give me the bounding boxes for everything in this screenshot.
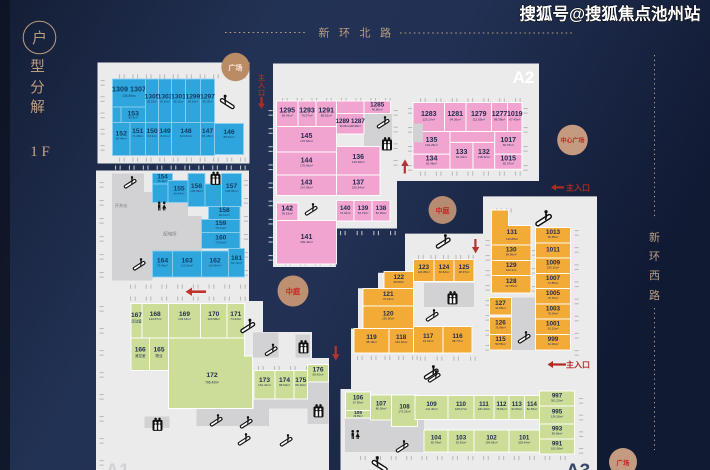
svg-text:75.96m²: 75.96m² (157, 264, 168, 268)
svg-text:149.38m²: 149.38m² (352, 160, 365, 164)
svg-text:94.26m²: 94.26m² (450, 118, 461, 122)
svg-text:81.46m²: 81.46m² (426, 162, 437, 166)
svg-text:117.85m²: 117.85m² (505, 284, 517, 288)
svg-text:93.92m²: 93.92m² (456, 441, 467, 445)
svg-text:A3: A3 (566, 461, 590, 470)
svg-text:分: 分 (30, 80, 45, 97)
svg-text:广场: 广场 (229, 63, 243, 72)
svg-text:64.73m²: 64.73m² (358, 211, 369, 215)
svg-text:中庭: 中庭 (436, 206, 451, 215)
svg-text:301.23m²: 301.23m² (551, 399, 563, 403)
svg-text:中庭: 中庭 (286, 287, 301, 296)
svg-text:74.85m²: 74.85m² (548, 281, 559, 285)
svg-text:108.44m²: 108.44m² (518, 441, 530, 445)
svg-text:170.66m²: 170.66m² (300, 139, 313, 143)
svg-text:131: 131 (507, 229, 518, 236)
svg-text:48.97m²: 48.97m² (459, 270, 470, 274)
svg-text:85.15m²: 85.15m² (188, 100, 198, 104)
svg-text:66.44m²: 66.44m² (173, 192, 184, 196)
svg-text:79.44m²: 79.44m² (215, 226, 226, 230)
svg-text:123.17m²: 123.17m² (422, 118, 435, 122)
svg-text:88.94m²: 88.94m² (223, 135, 234, 139)
svg-text:1289 1287: 1289 1287 (336, 118, 366, 125)
svg-text:85.43m²: 85.43m² (282, 114, 293, 118)
svg-text:71.08m²: 71.08m² (132, 134, 143, 138)
svg-text:物业: 物业 (155, 353, 163, 358)
svg-text:新环北路: 新环北路 (319, 26, 401, 40)
svg-text:138.32m²: 138.32m² (478, 155, 491, 159)
svg-text:796.43m²: 796.43m² (205, 381, 218, 385)
svg-text:143.87m²: 143.87m² (149, 317, 162, 321)
svg-text:121.86m²: 121.86m² (418, 270, 430, 274)
svg-text:82.25m²: 82.25m² (147, 100, 157, 104)
svg-text:86.36m²: 86.36m² (376, 407, 387, 411)
svg-text:154.09m²: 154.09m² (485, 441, 497, 445)
svg-text:路: 路 (649, 289, 660, 302)
svg-text:搜狐号@搜狐焦点池州站: 搜狐号@搜狐焦点池州站 (519, 4, 701, 24)
svg-text:西: 西 (649, 270, 660, 282)
svg-text:173.23m²: 173.23m² (398, 410, 410, 414)
svg-text:开关站: 开关站 (115, 202, 128, 209)
svg-text:63.71m²: 63.71m² (231, 261, 242, 265)
svg-text:59.55m²: 59.55m² (495, 342, 506, 346)
svg-text:104.86m²: 104.86m² (209, 264, 222, 268)
svg-text:86.45m²: 86.45m² (202, 134, 213, 138)
svg-text:76.51m²: 76.51m² (548, 296, 559, 300)
svg-text:62.59m²: 62.59m² (527, 407, 538, 411)
svg-text:88.52m²: 88.52m² (321, 114, 332, 118)
svg-text:67.43m²: 67.43m² (509, 118, 520, 122)
svg-text:75.88m²: 75.88m² (495, 326, 506, 330)
svg-text:84.3m²: 84.3m² (147, 134, 156, 138)
svg-text:399.43m²: 399.43m² (300, 240, 313, 244)
svg-text:57.36m²: 57.36m² (353, 401, 364, 405)
svg-text:61.51m²: 61.51m² (548, 327, 559, 331)
svg-text:A1: A1 (105, 461, 130, 470)
svg-text:166: 166 (135, 347, 146, 354)
svg-text:172: 172 (206, 372, 218, 379)
svg-text:167.99m²: 167.99m² (300, 186, 313, 190)
svg-text:35.46m²: 35.46m² (157, 179, 167, 183)
svg-text:84.44m²: 84.44m² (116, 137, 127, 141)
svg-text:62.59m²: 62.59m² (511, 407, 522, 411)
svg-text:39.19m²: 39.19m² (282, 212, 293, 216)
svg-text:134.32m²: 134.32m² (395, 340, 407, 344)
svg-text:1299: 1299 (186, 94, 201, 101)
svg-text:58.42m²: 58.42m² (312, 373, 323, 377)
svg-text:100.3m²: 100.3m² (506, 268, 517, 272)
svg-text:95.19m²: 95.19m² (295, 383, 306, 387)
svg-text:133.16m²: 133.16m² (178, 317, 191, 321)
svg-text:65.78m²: 65.78m² (431, 441, 442, 445)
svg-text:中心广场: 中心广场 (560, 137, 584, 145)
svg-text:主入口: 主入口 (566, 360, 590, 370)
svg-text:104.84m²: 104.84m² (180, 134, 193, 138)
svg-text:105.38m²: 105.38m² (551, 447, 563, 451)
svg-text:85.15m²: 85.15m² (203, 100, 213, 104)
svg-text:136.28m²: 136.28m² (551, 415, 563, 419)
svg-text:1 F: 1 F (30, 144, 50, 160)
svg-text:1297: 1297 (200, 94, 215, 101)
svg-text:环: 环 (649, 251, 660, 263)
svg-text:广场: 广场 (617, 458, 631, 467)
svg-text:40.80m²: 40.80m² (372, 108, 383, 112)
svg-text:135.59m²: 135.59m² (122, 94, 135, 98)
svg-text:1301: 1301 (171, 94, 186, 101)
svg-text:81.25m²: 81.25m² (376, 211, 387, 215)
svg-text:112.05m²: 112.05m² (473, 118, 485, 122)
svg-text:68.04m²: 68.04m² (279, 383, 290, 387)
svg-text:84.9m²: 84.9m² (160, 134, 169, 138)
svg-text:98.8m²: 98.8m² (129, 116, 138, 120)
svg-text:156.84m²: 156.84m² (352, 186, 365, 190)
svg-text:101.26m²: 101.26m² (425, 143, 438, 147)
svg-text:91.10m²: 91.10m² (423, 339, 434, 343)
svg-text:63.62m²: 63.62m² (439, 270, 450, 274)
svg-text:消控室: 消控室 (135, 353, 146, 358)
svg-text:170.66m²: 170.66m² (300, 164, 313, 168)
svg-text:110.06m²: 110.06m² (181, 264, 193, 268)
svg-text:31.85m²: 31.85m² (495, 306, 506, 310)
svg-text:123.98m²: 123.98m² (207, 317, 220, 321)
svg-text:解: 解 (30, 99, 45, 116)
svg-text:161.31m²: 161.31m² (258, 383, 271, 387)
svg-text:79.43m²: 79.43m² (383, 297, 394, 301)
svg-text:72.42m²: 72.42m² (340, 211, 351, 215)
svg-text:1011: 1011 (546, 247, 560, 254)
svg-text:口: 口 (258, 89, 265, 97)
svg-text:146.88m²: 146.88m² (506, 237, 518, 241)
svg-text:型: 型 (30, 59, 45, 76)
svg-text:活动室: 活动室 (131, 319, 142, 324)
svg-text:98.58m²: 98.58m² (393, 280, 404, 284)
svg-text:65.37m²: 65.37m² (503, 162, 514, 166)
svg-text:141.40m²: 141.40m² (425, 407, 437, 411)
svg-text:98.77m²: 98.77m² (452, 339, 463, 343)
svg-text:83.06m²: 83.06m² (552, 432, 563, 436)
svg-text:78.81m²: 78.81m² (496, 407, 507, 411)
svg-text:入: 入 (257, 82, 265, 90)
svg-text:A2: A2 (513, 68, 535, 87)
svg-text:84.95m²: 84.95m² (506, 253, 517, 257)
svg-text:1309 1307: 1309 1307 (112, 85, 146, 94)
svg-text:82.25m²: 82.25m² (160, 100, 170, 104)
svg-text:98.38m²: 98.38m² (494, 118, 505, 122)
svg-text:108.27m²: 108.27m² (455, 407, 467, 411)
svg-text:74.23m²: 74.23m² (230, 317, 241, 321)
svg-text:76.07m²: 76.07m² (301, 114, 312, 118)
svg-text:84.33m²: 84.33m² (456, 155, 467, 159)
svg-text:85.15m²: 85.15m² (174, 100, 184, 104)
svg-text:181.39m²: 181.39m² (478, 407, 490, 411)
svg-text:主入口: 主入口 (566, 183, 590, 193)
svg-text:75.04m²: 75.04m² (548, 312, 559, 316)
svg-text:136.50m²: 136.50m² (382, 317, 394, 321)
svg-text:户: 户 (32, 30, 47, 47)
svg-text:79.66m²: 79.66m² (215, 241, 226, 245)
svg-text:新: 新 (649, 230, 660, 244)
svg-text:155.12m²: 155.12m² (547, 266, 559, 270)
svg-text:96.85m²: 96.85m² (548, 235, 559, 239)
svg-text:98.18m²: 98.18m² (366, 340, 377, 344)
svg-text:39.65m²: 39.65m² (353, 415, 362, 418)
svg-text:165: 165 (153, 347, 164, 354)
svg-text:69.70m²: 69.70m² (503, 143, 514, 147)
svg-text:配电所: 配电所 (163, 231, 177, 238)
svg-text:主: 主 (258, 73, 265, 82)
svg-text:130.99m²: 130.99m² (190, 189, 203, 193)
svg-text:167: 167 (131, 312, 142, 319)
svg-text:130.05m²: 130.05m² (225, 189, 238, 193)
svg-text:61.39m²: 61.39m² (548, 342, 559, 346)
svg-text:92.31m²: 92.31m² (219, 213, 230, 217)
svg-text:96.05m²190.98m²: 96.05m²190.98m² (340, 124, 361, 128)
